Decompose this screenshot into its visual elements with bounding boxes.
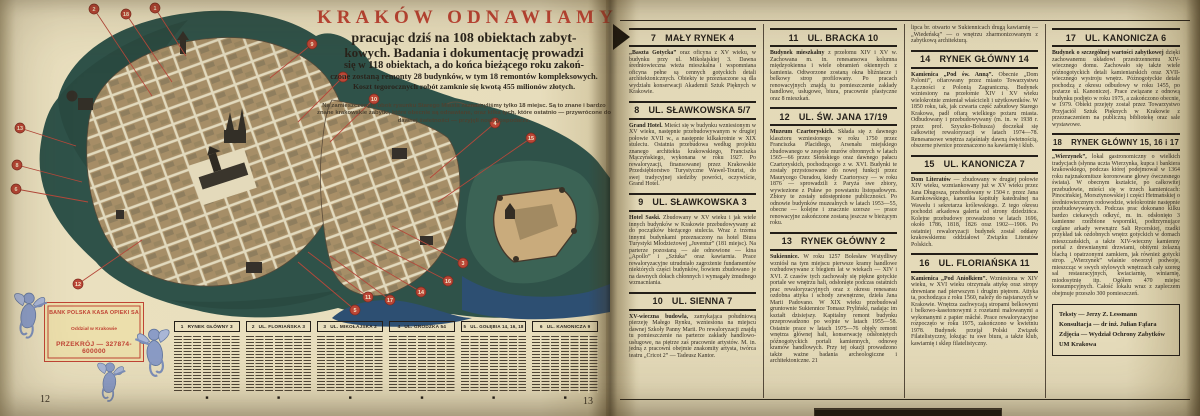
svg-text:11: 11 xyxy=(365,295,371,301)
entry-heading-12: 12UL. ŚW. JANA 17/19 xyxy=(770,107,897,126)
subtitle-line: Koszt tegorocznych robót zamknie się kwo… xyxy=(317,82,611,92)
mini-column-heading: 5UL. GOŁĘBIA 14, 16, 18 xyxy=(461,321,527,332)
cherub-icon xyxy=(15,293,47,338)
end-mark: ■ xyxy=(246,396,312,401)
subtitle-line: kowych. Badania i dokumentację prowadzi xyxy=(317,46,611,60)
mini-column-body-text xyxy=(532,336,598,393)
mini-column-heading: 4UL. GRODZKA 54 xyxy=(389,321,455,332)
end-mark: ■ xyxy=(389,396,455,401)
svg-text:17: 17 xyxy=(387,298,393,304)
entry-number: 16 xyxy=(919,258,929,268)
entry-heading-15: 15UL. KANONICZA 7 xyxy=(911,155,1038,174)
svg-text:13: 13 xyxy=(17,126,23,132)
entry-paragraph: Budynek mieszkalny z przełomu XIV i XV w… xyxy=(770,50,897,102)
subtitle-line: się w 118 obiektach, a do końca bieżąceg… xyxy=(317,60,611,72)
mini-heading-number: 3 xyxy=(323,324,326,329)
mini-heading-number: 4 xyxy=(398,324,401,329)
mini-heading-title: UL. GRODZKA 54 xyxy=(404,324,446,329)
photo-strip xyxy=(814,408,1002,416)
entry-street: UL. KANONICZA 7 xyxy=(944,159,1025,169)
entry-paragraph: „Baszta Gotycka” oraz oficyna z XV wieku… xyxy=(629,50,756,96)
end-mark: ■ xyxy=(317,396,383,401)
entry-heading-16: 16UL. FLORIAŃSKA 11 xyxy=(911,253,1038,272)
mini-column-body-text xyxy=(317,336,383,393)
entry-number: 15 xyxy=(924,159,934,169)
entry-paragraph: Sukiennice. W roku 1257 Bolesław Wstydli… xyxy=(770,254,897,365)
entry-street: RYNEK GŁÓWNY 15, 16 i 17 xyxy=(1071,138,1179,147)
svg-text:2: 2 xyxy=(93,7,96,13)
entry-street: UL. KANONICZA 6 xyxy=(1085,33,1166,43)
entry-paragraph: Budynek o szczególnej wartości zabytkowe… xyxy=(1052,50,1180,128)
entry-street: MAŁY RYNEK 4 xyxy=(665,33,734,43)
florian-gate xyxy=(78,98,93,110)
entry-number: 17 xyxy=(1066,33,1076,43)
entry-heading-13: 13RYNEK GŁÓWNY 2 xyxy=(770,232,897,251)
ornament-divider-icon xyxy=(317,94,611,101)
entry-paragraph: Kamienica „Pod Aniołkiem”. Wzniesiona w … xyxy=(911,276,1038,348)
mini-column-body-text xyxy=(246,336,312,393)
svg-text:3: 3 xyxy=(462,261,465,267)
entry-lead: „Baszta Gotycka” xyxy=(629,50,676,56)
article-column-4: 17UL. KANONICZA 6Budynek o szczególnej w… xyxy=(1046,24,1187,398)
entry-paragraph: „Wierzynek”, lokal gastronomiczny o wiel… xyxy=(1052,154,1180,297)
subtitle-line: pracując dziś na 108 obiektach zabyt- xyxy=(317,31,611,46)
cherub-engravings xyxy=(0,283,190,416)
entry-lead: XV-wieczna budowla, xyxy=(629,314,688,320)
page-number-left: 12 xyxy=(40,394,50,405)
mini-heading-number: 2 xyxy=(252,324,255,329)
article-column-1: 7MAŁY RYNEK 4„Baszta Gotycka” oraz oficy… xyxy=(623,24,764,398)
mini-heading-number: 5 xyxy=(464,324,467,329)
svg-text:15: 15 xyxy=(528,136,534,142)
entry-lead: Budynek o szczególnej wartości zabytkowe… xyxy=(1052,50,1164,56)
entry-lead: Sukiennice. xyxy=(770,254,799,260)
st-marys-church xyxy=(224,130,246,143)
mini-heading-title: UL. FLORIAŃSKA 3 xyxy=(259,324,306,329)
entry-number: 13 xyxy=(782,236,792,246)
entry-number: 7 xyxy=(651,33,656,43)
credits-line: Konsultacja — dr inż. Julian Fąfara xyxy=(1059,320,1173,330)
entry-heading-9: 9UL. SŁAWKOWSKA 3 xyxy=(629,193,756,212)
svg-text:6: 6 xyxy=(15,187,18,193)
entry-street: UL. BRACKA 10 xyxy=(808,33,879,43)
entry-street: UL. ŚW. JANA 17/19 xyxy=(799,112,888,122)
entry-street: UL. SŁAWKOWSKA 3 xyxy=(652,197,746,207)
entry-number: 10 xyxy=(653,296,663,306)
entry-paragraph: Grand Hotel. Mieści się w budynku wznies… xyxy=(629,123,756,188)
entry-heading-11: 11UL. BRACKA 10 xyxy=(770,28,897,47)
cherub-icon xyxy=(98,363,126,401)
mini-column-heading: 6UL. KANONICZA 9 xyxy=(532,321,598,332)
mini-column-body-text xyxy=(389,336,455,393)
entry-lead: Dom Literatów xyxy=(911,177,951,183)
map-header: KRAKÓW ODNAWIAMY pracując dziś na 108 ob… xyxy=(317,7,611,126)
article-columns: 7MAŁY RYNEK 4„Baszta Gotycka” oraz oficy… xyxy=(623,24,1187,398)
mini-column-heading: 3UL. MIKOŁAJSKA 2 xyxy=(317,321,383,332)
end-mark: ■ xyxy=(461,396,527,401)
entry-number: 12 xyxy=(779,112,789,122)
mini-columns: 1RYNEK GŁÓWNY 3■2UL. FLORIAŃSKA 3■3UL. M… xyxy=(174,321,598,401)
magazine-spread: 218197104151386125111714163 KRAKÓW ODNAW… xyxy=(0,0,1200,416)
entry-lead: Hotel Saski. xyxy=(629,215,660,221)
entry-lead: Kamienica „Pod św. Anną”. xyxy=(911,72,993,78)
entry-heading-7: 7MAŁY RYNEK 4 xyxy=(629,28,756,47)
mini-column-2: 2UL. FLORIAŃSKA 3■ xyxy=(246,321,312,401)
svg-text:9: 9 xyxy=(311,42,314,48)
entry-street: UL. SIENNA 7 xyxy=(672,296,733,306)
mini-heading-number: 6 xyxy=(540,324,543,329)
credits-line: Teksty — Jerzy Z. Lessmann xyxy=(1059,310,1173,320)
mini-heading-title: UL. GOŁĘBIA 14, 16, 18 xyxy=(470,324,523,329)
mini-column-3: 3UL. MIKOŁAJSKA 2■ xyxy=(317,321,383,401)
mini-heading-title: UL. MIKOŁAJSKA 2 xyxy=(330,324,377,329)
subtitle-line: czone zostaną remonty 28 budynków, w tym… xyxy=(317,72,611,82)
mini-column-5: 5UL. GOŁĘBIA 14, 16, 18■ xyxy=(461,321,527,401)
entry-paragraph: Hotel Saski. Zbudowany w XV wieku i jak … xyxy=(629,215,756,287)
entry-lead: „Wierzynek”, xyxy=(1052,154,1087,160)
mini-heading-title: RYNEK GŁÓWNY 3 xyxy=(188,324,233,329)
entry-paragraph: XV-wieczna budowla, zamykająca południow… xyxy=(629,314,756,360)
entry-heading-17: 17UL. KANONICZA 6 xyxy=(1052,28,1180,47)
entry-heading-10: 10UL. SIENNA 7 xyxy=(629,292,756,311)
mini-column-heading: 2UL. FLORIAŃSKA 3 xyxy=(246,321,312,332)
svg-text:8: 8 xyxy=(16,163,19,169)
entry-lead: Muzeum Czartoryskich. xyxy=(770,129,834,135)
entry-number: 11 xyxy=(789,33,799,43)
entry-heading-18: 18RYNEK GŁÓWNY 15, 16 i 17 xyxy=(1052,133,1180,151)
svg-text:18: 18 xyxy=(123,12,129,18)
section-arrow-icon xyxy=(613,24,630,50)
entry-number: 14 xyxy=(920,54,930,64)
svg-text:5: 5 xyxy=(354,308,357,314)
article-column-3: lipca br. otwarto w Sukiennicach drugą k… xyxy=(905,24,1046,398)
entry-lead: Grand Hotel. xyxy=(629,123,663,129)
mini-column-6: 6UL. KANONICZA 9■ xyxy=(532,321,598,401)
entry-paragraph: Muzeum Czartoryskich. Składa się z dawne… xyxy=(770,129,897,227)
bottom-rule xyxy=(620,399,1190,400)
entry-street: RYNEK GŁÓWNY 14 xyxy=(939,54,1029,64)
credits-box: Teksty — Jerzy Z. LessmannKonsultacja — … xyxy=(1052,304,1180,356)
entry-lead: Budynek mieszkalny xyxy=(770,50,824,56)
top-rule xyxy=(620,20,1190,21)
page-title: KRAKÓW ODNAWIAMY xyxy=(317,7,611,29)
barbican xyxy=(67,91,78,102)
entry-paragraph: Dom Literatów — zbudowany w drugiej poło… xyxy=(911,177,1038,249)
mini-column-body-text xyxy=(461,336,527,393)
entry-street: RYNEK GŁÓWNY 2 xyxy=(801,236,885,246)
entry-number: 8 xyxy=(634,105,639,115)
entry-street: UL. FLORIAŃSKA 11 xyxy=(939,258,1030,268)
mini-heading-title: UL. KANONICZA 9 xyxy=(547,324,591,329)
entry-heading-8: 8UL. SŁAWKOWSKA 5/7 xyxy=(629,101,756,120)
svg-text:1: 1 xyxy=(154,6,157,12)
left-page: 218197104151386125111714163 KRAKÓW ODNAW… xyxy=(0,0,606,416)
credits-line: Zdjęcia — Wydział Ochrony Zabytków UM Kr… xyxy=(1059,330,1173,350)
mini-column-4: 4UL. GRODZKA 54■ xyxy=(389,321,455,401)
entry-lead: Kamienica „Pod Aniołkiem”. xyxy=(911,276,987,282)
continuation-paragraph: lipca br. otwarto w Sukiennicach drugą k… xyxy=(911,25,1038,45)
entry-street: UL. SŁAWKOWSKA 5/7 xyxy=(648,105,750,115)
svg-text:14: 14 xyxy=(418,290,424,296)
article-column-2: 11UL. BRACKA 10Budynek mieszkalny z prze… xyxy=(764,24,905,398)
svg-text:16: 16 xyxy=(445,279,451,285)
entry-number: 18 xyxy=(1053,138,1062,147)
entry-paragraph: Kamienica „Pod św. Anną”. Obecnie „Dom P… xyxy=(911,72,1038,150)
right-page: 7MAŁY RYNEK 4„Baszta Gotycka” oraz oficy… xyxy=(606,0,1200,416)
page-number-right: 13 xyxy=(583,396,593,407)
cherub-icon xyxy=(135,329,169,376)
map-caption-note: Na zamieszczonym obok rysunku Starego Mi… xyxy=(317,103,611,126)
entry-heading-14: 14RYNEK GŁÓWNY 14 xyxy=(911,50,1038,69)
entry-number: 9 xyxy=(638,197,643,207)
